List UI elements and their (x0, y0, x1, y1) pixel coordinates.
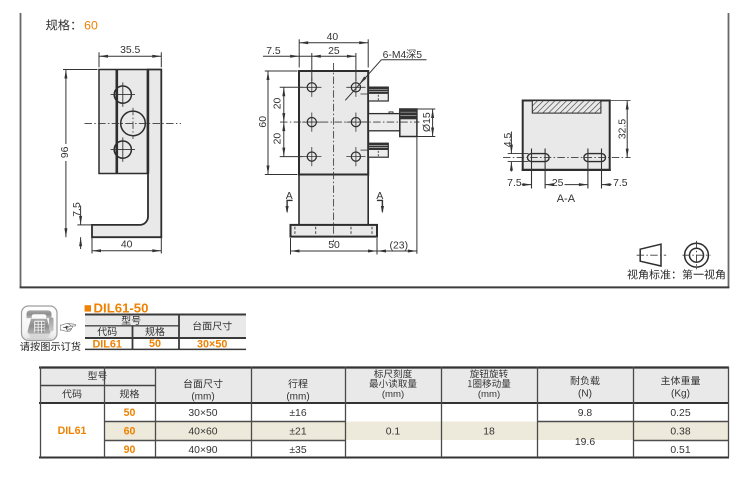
svg-text:0.38: 0.38 (670, 427, 690, 438)
svg-text:(mm): (mm) (382, 389, 404, 400)
svg-text:0.51: 0.51 (670, 445, 690, 456)
svg-text:32.5: 32.5 (617, 119, 628, 139)
svg-text:50: 50 (328, 240, 340, 251)
svg-text:DIL61: DIL61 (58, 425, 87, 437)
svg-text:A-A: A-A (557, 193, 576, 205)
svg-text:(mm): (mm) (191, 391, 214, 402)
svg-text:0.25: 0.25 (670, 408, 690, 419)
svg-text:7.5: 7.5 (72, 202, 83, 217)
svg-text:40×60: 40×60 (188, 427, 217, 438)
svg-text:±35: ±35 (289, 445, 306, 456)
svg-text:7.5: 7.5 (266, 46, 281, 57)
svg-text:(mm): (mm) (478, 389, 500, 400)
svg-text:0.1: 0.1 (386, 427, 401, 438)
svg-text:60: 60 (258, 116, 269, 128)
svg-text:50: 50 (149, 338, 161, 350)
svg-text:35.5: 35.5 (120, 45, 140, 56)
svg-text:96: 96 (60, 146, 71, 158)
svg-text:30×50: 30×50 (188, 408, 217, 419)
svg-text:20: 20 (272, 133, 283, 145)
svg-text:40: 40 (327, 32, 339, 43)
svg-text:(Kg): (Kg) (671, 388, 690, 399)
svg-text:40×90: 40×90 (188, 445, 217, 456)
svg-text:4.5: 4.5 (503, 133, 514, 148)
svg-text:(N): (N) (578, 388, 592, 399)
svg-text:7.5: 7.5 (613, 178, 628, 189)
svg-text:6-M4: 6-M4 (383, 50, 407, 61)
svg-text:60: 60 (124, 426, 136, 438)
svg-text:DIL61: DIL61 (92, 339, 121, 351)
svg-text:5: 5 (416, 50, 422, 61)
svg-text:(mm): (mm) (286, 391, 309, 402)
svg-text:50: 50 (124, 407, 136, 419)
svg-text:DIL61-50: DIL61-50 (94, 301, 149, 316)
svg-text:18: 18 (483, 427, 495, 438)
svg-text:9.8: 9.8 (578, 408, 593, 419)
svg-text:±21: ±21 (289, 427, 306, 438)
svg-text:25: 25 (552, 178, 564, 189)
svg-text:±16: ±16 (289, 408, 306, 419)
svg-text:Ø15: Ø15 (422, 112, 433, 132)
svg-text:40: 40 (121, 240, 133, 251)
svg-text:20: 20 (272, 98, 283, 110)
svg-text:90: 90 (124, 444, 136, 456)
svg-text:19.6: 19.6 (575, 437, 595, 448)
svg-text:60: 60 (84, 18, 98, 32)
svg-text:(23): (23) (390, 240, 408, 251)
svg-text:30×50: 30×50 (197, 339, 227, 351)
svg-text:25: 25 (328, 46, 340, 57)
svg-text:7.5: 7.5 (507, 178, 522, 189)
